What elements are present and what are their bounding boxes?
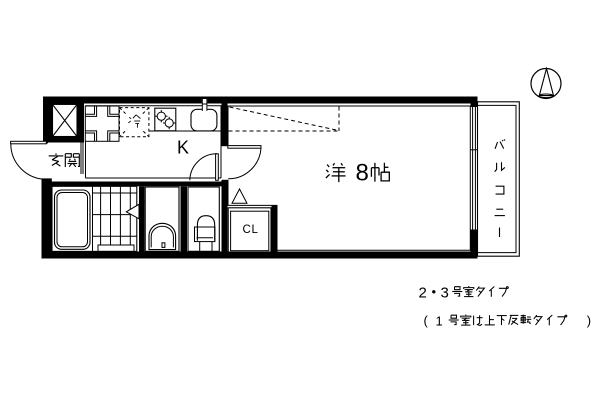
svg-text:3: 3 [441,284,449,301]
svg-text:1: 1 [436,314,443,329]
svg-text:2: 2 [419,284,427,301]
svg-text:8: 8 [356,159,369,186]
svg-text:L: L [252,224,259,236]
svg-text:C: C [243,224,251,236]
svg-text:(: ( [424,313,429,328]
svg-text:K: K [177,137,189,157]
svg-text:): ) [587,313,591,328]
